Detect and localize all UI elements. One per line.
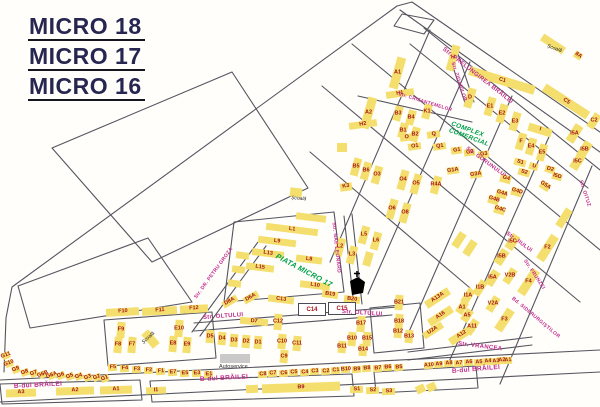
building-label: A2 xyxy=(365,110,372,116)
building-label: I5B xyxy=(580,147,589,153)
building-label: Q1 xyxy=(435,143,443,149)
building-label: F4 xyxy=(121,366,128,372)
building-label: E8 xyxy=(170,341,177,347)
building-label: S2 xyxy=(369,388,376,394)
building-label: E3 xyxy=(512,119,519,125)
title-micro-16: MICRO 16 xyxy=(28,74,145,101)
building-label: B17 xyxy=(356,321,366,327)
building-label: R4A xyxy=(430,182,441,188)
building-label: E1 xyxy=(487,104,494,110)
building-label: F7 xyxy=(129,342,135,348)
building xyxy=(337,143,347,152)
building-label: B13 xyxy=(404,334,414,340)
map-canvas: MICRO 18 MICRO 17 MICRO 16 Autoservice A… xyxy=(0,0,600,407)
building-label: B5 xyxy=(395,365,402,371)
building-label: D2 xyxy=(242,339,249,345)
building xyxy=(246,385,258,393)
building-label: S2 xyxy=(520,169,528,176)
building-label: O4 xyxy=(399,177,406,183)
building-label: B9 xyxy=(297,385,304,391)
building-label: E7 xyxy=(169,370,176,376)
building xyxy=(232,265,246,274)
building-label: B3 xyxy=(394,111,401,117)
building-label: H2 xyxy=(359,121,367,127)
building-label: F10 xyxy=(118,309,128,315)
building-label: B20 xyxy=(347,296,358,303)
building-label: B12 xyxy=(393,329,403,335)
building-label: L9 xyxy=(273,238,280,244)
building-label: F1 xyxy=(157,369,164,375)
building-label: K1 xyxy=(423,109,430,115)
building-label: L8 xyxy=(305,256,312,262)
church-icon xyxy=(346,271,368,297)
building-label: A3 xyxy=(17,390,24,396)
building-label: I1 xyxy=(154,388,159,394)
building-label: I1B xyxy=(476,285,485,291)
building-label: O3 xyxy=(373,172,380,178)
building-label: B10 xyxy=(347,336,357,342)
building-label: I5B xyxy=(497,254,506,260)
building-label: O xyxy=(404,134,409,140)
building-label: A1 xyxy=(394,70,401,76)
building-label: A8 xyxy=(445,361,452,367)
building-label: F8 xyxy=(115,342,121,348)
building-label: B5 xyxy=(352,164,359,170)
building-label: G3A xyxy=(470,171,482,178)
building-label: V2B xyxy=(505,273,516,279)
building-label: C4 xyxy=(301,370,308,376)
building-label: E5 xyxy=(181,371,188,377)
building-label: S1 xyxy=(353,387,360,393)
building-label: I5C xyxy=(573,159,582,165)
map-title: MICRO 18 MICRO 17 MICRO 16 xyxy=(28,14,145,104)
building-label: F3 xyxy=(501,317,507,323)
building-label: C7 xyxy=(269,371,276,377)
building-label: D7 xyxy=(250,318,257,324)
building-label: C11 xyxy=(292,341,302,347)
building-label: F5 xyxy=(109,365,116,371)
building-label: O8 xyxy=(401,210,408,216)
building-label: A11 xyxy=(467,324,477,330)
building-label: I5A xyxy=(488,275,497,281)
building-label: C6 xyxy=(280,371,287,377)
building-label: Q xyxy=(431,131,436,137)
building-label: O1 xyxy=(410,143,418,149)
building-label: B6 xyxy=(384,365,391,371)
building-label: S3 xyxy=(385,389,392,395)
building-label: F2 xyxy=(544,245,550,251)
building xyxy=(228,279,242,288)
building-label: F2 xyxy=(145,368,152,374)
building-label: B1 xyxy=(399,128,406,134)
building-label: D4 xyxy=(218,336,225,342)
building-label: C2 xyxy=(590,118,597,124)
building-label: F12 xyxy=(189,306,199,312)
building-label: L3 xyxy=(349,252,355,258)
building-label: O6 xyxy=(388,206,395,212)
building-label: B15 xyxy=(362,336,372,342)
building-label: G1 xyxy=(452,147,460,153)
building-label: B7 xyxy=(374,366,381,372)
building-label: D1 xyxy=(254,340,261,346)
building-label: F9 xyxy=(118,327,124,333)
building-label: U xyxy=(531,163,536,169)
building-label: L6 xyxy=(373,238,379,244)
building-label: A9 xyxy=(435,362,442,368)
building-label: L15 xyxy=(255,264,265,271)
building-label: B4 xyxy=(407,115,414,121)
autoservice-label: Autoservice xyxy=(219,365,248,371)
building-label: B18 xyxy=(394,319,404,325)
building-label: C14 xyxy=(306,307,317,313)
building-label: A10 xyxy=(423,362,433,368)
building-label: A1 xyxy=(112,387,119,393)
autoservice-building xyxy=(220,354,250,363)
building-label: I1A xyxy=(464,293,473,299)
building-label: B11 xyxy=(337,344,347,350)
building-label: A5 xyxy=(463,313,470,319)
building-label: C2 xyxy=(322,369,329,375)
building-label: C1 xyxy=(332,368,339,374)
building-label: B10 xyxy=(340,366,350,372)
building xyxy=(236,251,250,260)
building-label: B8 xyxy=(363,366,370,372)
building-label: A6 xyxy=(465,360,472,366)
building-label: L13 xyxy=(263,250,273,257)
building-label: B19 xyxy=(325,291,336,298)
building-label: D3 xyxy=(230,338,237,344)
building-label: C1 xyxy=(498,77,506,84)
building-label: C12 xyxy=(273,319,283,325)
building-label: C5 xyxy=(290,370,297,376)
building-label: B21 xyxy=(394,300,404,306)
title-micro-18: MICRO 18 xyxy=(28,14,145,41)
building-label: S1 xyxy=(516,159,524,166)
building-label: I5A xyxy=(570,131,579,137)
building-label: F xyxy=(519,139,522,145)
building-label: B6 xyxy=(362,168,369,174)
building-label: K3 xyxy=(342,184,350,190)
building-label: E10 xyxy=(174,326,184,332)
building-label: F3 xyxy=(133,367,140,373)
building-label: V2A xyxy=(488,301,499,307)
building-label: C13 xyxy=(276,296,287,303)
title-micro-17: MICRO 17 xyxy=(28,44,145,71)
building-label: C3 xyxy=(311,369,318,375)
building-label: B14 xyxy=(358,347,368,353)
building-label: L5 xyxy=(361,232,367,238)
building-label: D xyxy=(468,95,472,101)
building-label: O5 xyxy=(412,181,419,187)
building-label: C10 xyxy=(277,339,287,345)
building-label: A7 xyxy=(455,361,462,367)
building-label: E5 xyxy=(539,150,546,156)
building-label: E4 xyxy=(528,144,535,150)
building-label: E9 xyxy=(184,342,191,348)
building-label: F11 xyxy=(155,308,164,314)
building-label: L1 xyxy=(288,226,295,232)
building-label: D5 xyxy=(206,334,213,340)
building-label: C8 xyxy=(259,372,266,378)
building-label: C9 xyxy=(280,354,287,360)
building-label: A1 xyxy=(504,358,511,364)
building-label: E2 xyxy=(499,111,506,117)
building-label: F4 xyxy=(525,279,531,285)
building-label: B9 xyxy=(353,367,360,373)
building-label: A2 xyxy=(71,388,78,394)
building-label: A1 xyxy=(458,305,465,311)
labeled-box-building: C14 xyxy=(298,303,326,316)
building-label: B2 xyxy=(411,132,418,138)
building-label: G1A xyxy=(447,167,459,174)
